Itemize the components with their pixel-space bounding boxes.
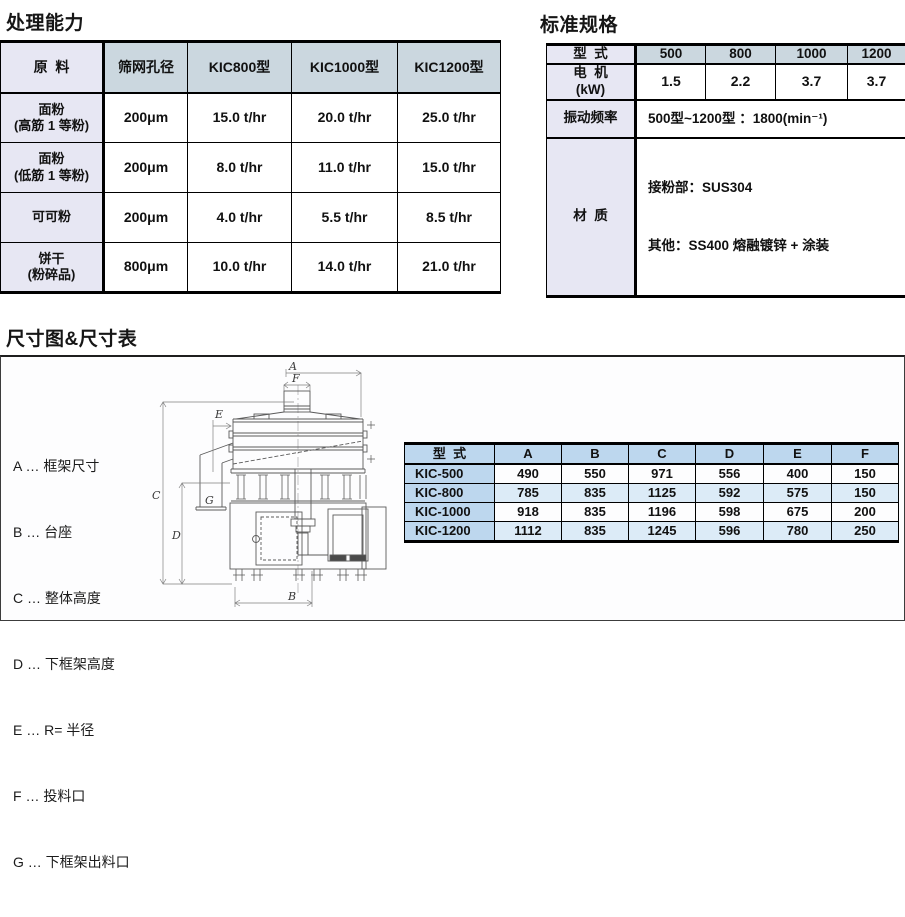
throughput-cell: 8.5 t/hr [398,193,501,243]
specs-model-1000: 1000 [776,45,848,64]
dim-header-a: A [495,444,562,465]
dim-header-e: E [764,444,832,465]
model-cell: KIC-800 [405,484,495,503]
table-row: 面粉 (低筋 1 等粉) 200μm 8.0 t/hr 11.0 t/hr 15… [1,143,501,193]
dim-value-cell: 200 [832,503,899,522]
material-cell: 可可粉 [1,193,104,243]
dim-model-label: 型 式 [405,444,495,465]
dim-value-cell: 1125 [629,484,696,503]
throughput-cell: 11.0 t/hr [292,143,398,193]
motor-kw-cell: 3.7 [848,64,905,100]
model-cell: KIC-1200 [405,522,495,542]
dim-value-cell: 1112 [495,522,562,542]
diagram-label-e: E [214,408,223,421]
dim-value-cell: 835 [562,484,629,503]
dimensions-panel: A … 框架尺寸 B … 台座 C … 整体高度 D … 下框架高度 E … R… [0,355,905,621]
throughput-cell: 15.0 t/hr [398,143,501,193]
throughput-cell: 14.0 t/hr [292,243,398,293]
material-cell: 面粉 (高筋 1 等粉) [1,93,104,143]
capacity-header-row: 原 料 筛网孔径 KIC800型 KIC1000型 KIC1200型 [1,42,501,93]
dimensions-header-row: 型 式 A B C D E F [405,444,899,465]
material-line-1: 接粉部：SUS304 [648,178,905,198]
diagram-label-f: F [291,372,300,385]
legend-item: D … 下框架高度 [13,653,130,675]
legend-item: C … 整体高度 [13,587,130,609]
dimensions-table: 型 式 A B C D E F KIC-500 490 550 971 556 … [404,442,899,543]
dim-value-cell: 675 [764,503,832,522]
dimension-diagram: A F E C D G B [136,357,406,619]
throughput-cell: 4.0 t/hr [188,193,292,243]
motor-row: 电 机 (kW) 1.5 2.2 3.7 3.7 [547,64,905,100]
material-spec-label: 材 质 [547,138,636,297]
diagram-label-d: D [171,529,181,542]
dim-value-cell: 400 [764,464,832,484]
throughput-cell: 25.0 t/hr [398,93,501,143]
specs-table: 型 式 500 800 1000 1200 电 机 (kW) 1.5 2.2 3… [546,43,905,298]
capacity-header-material: 原 料 [1,42,104,93]
material-cell: 面粉 (低筋 1 等粉) [1,143,104,193]
mesh-cell: 200μm [104,93,188,143]
motor-kw-cell: 1.5 [636,64,706,100]
dim-value-cell: 918 [495,503,562,522]
material-spec-value: 接粉部：SUS304 其他：SS400 熔融镀锌 + 涂装 [636,138,905,297]
mesh-cell: 200μm [104,143,188,193]
diagram-label-c: C [152,489,161,502]
capacity-header-kic800: KIC800型 [188,42,292,93]
mesh-cell: 800μm [104,243,188,293]
dim-value-cell: 1245 [629,522,696,542]
dimension-legend: A … 框架尺寸 B … 台座 C … 整体高度 D … 下框架高度 E … R… [13,411,130,917]
throughput-cell: 15.0 t/hr [188,93,292,143]
dim-value-cell: 1196 [629,503,696,522]
model-cell: KIC-1000 [405,503,495,522]
dim-header-d: D [696,444,764,465]
material-cell: 饼干 (粉碎品) [1,243,104,293]
capacity-table: 原 料 筛网孔径 KIC800型 KIC1000型 KIC1200型 面粉 (高… [0,40,501,294]
legend-item: B … 台座 [13,521,130,543]
dim-value-cell: 835 [562,503,629,522]
dim-value-cell: 592 [696,484,764,503]
dim-value-cell: 550 [562,464,629,484]
dim-value-cell: 490 [495,464,562,484]
vibration-value: 500型~1200型 ：1800(min⁻¹) [636,100,905,138]
specs-header-row: 型 式 500 800 1000 1200 [547,45,905,64]
table-row: KIC-1200 1112 835 1245 596 780 250 [405,522,899,542]
diagram-label-b: B [287,590,296,603]
dim-header-c: C [629,444,696,465]
mesh-cell: 200μm [104,193,188,243]
throughput-cell: 20.0 t/hr [292,93,398,143]
table-row: KIC-1000 918 835 1196 598 675 200 [405,503,899,522]
table-row: 面粉 (高筋 1 等粉) 200μm 15.0 t/hr 20.0 t/hr 2… [1,93,501,143]
throughput-cell: 5.5 t/hr [292,193,398,243]
vibration-label: 振动频率 [547,100,636,138]
table-row: 可可粉 200μm 4.0 t/hr 5.5 t/hr 8.5 t/hr [1,193,501,243]
vibration-row: 振动频率 500型~1200型 ：1800(min⁻¹) [547,100,905,138]
dim-header-f: F [832,444,899,465]
specs-title: 标准规格 [540,10,618,37]
dim-value-cell: 780 [764,522,832,542]
table-row: 饼干 (粉碎品) 800μm 10.0 t/hr 14.0 t/hr 21.0 … [1,243,501,293]
motor-label: 电 机 (kW) [547,64,636,100]
model-cell: KIC-500 [405,464,495,484]
dim-value-cell: 971 [629,464,696,484]
capacity-header-kic1000: KIC1000型 [292,42,398,93]
throughput-cell: 21.0 t/hr [398,243,501,293]
dim-value-cell: 598 [696,503,764,522]
motor-kw-cell: 2.2 [706,64,776,100]
dim-value-cell: 150 [832,464,899,484]
dim-header-b: B [562,444,629,465]
table-row: KIC-800 785 835 1125 592 575 150 [405,484,899,503]
legend-item: E … R= 半径 [13,719,130,741]
material-line-2: 其他：SS400 熔融镀锌 + 涂装 [648,236,905,256]
capacity-title: 处理能力 [6,8,84,35]
material-spec-row: 材 质 接粉部：SUS304 其他：SS400 熔融镀锌 + 涂装 [547,138,905,297]
capacity-header-kic1200: KIC1200型 [398,42,501,93]
specs-model-label: 型 式 [547,45,636,64]
dim-value-cell: 785 [495,484,562,503]
throughput-cell: 8.0 t/hr [188,143,292,193]
legend-item: F … 投料口 [13,785,130,807]
specs-model-800: 800 [706,45,776,64]
motor-kw-cell: 3.7 [776,64,848,100]
throughput-cell: 10.0 t/hr [188,243,292,293]
diagram-label-g: G [205,494,214,507]
dim-value-cell: 250 [832,522,899,542]
legend-item: G … 下框架出料口 [13,851,130,873]
dim-value-cell: 596 [696,522,764,542]
specs-model-500: 500 [636,45,706,64]
dim-value-cell: 556 [696,464,764,484]
legend-item: A … 框架尺寸 [13,455,130,477]
table-row: KIC-500 490 550 971 556 400 150 [405,464,899,484]
dimensions-title: 尺寸图&尺寸表 [6,324,137,351]
dim-value-cell: 150 [832,484,899,503]
capacity-header-mesh: 筛网孔径 [104,42,188,93]
dim-value-cell: 835 [562,522,629,542]
dim-value-cell: 575 [764,484,832,503]
specs-model-1200: 1200 [848,45,905,64]
